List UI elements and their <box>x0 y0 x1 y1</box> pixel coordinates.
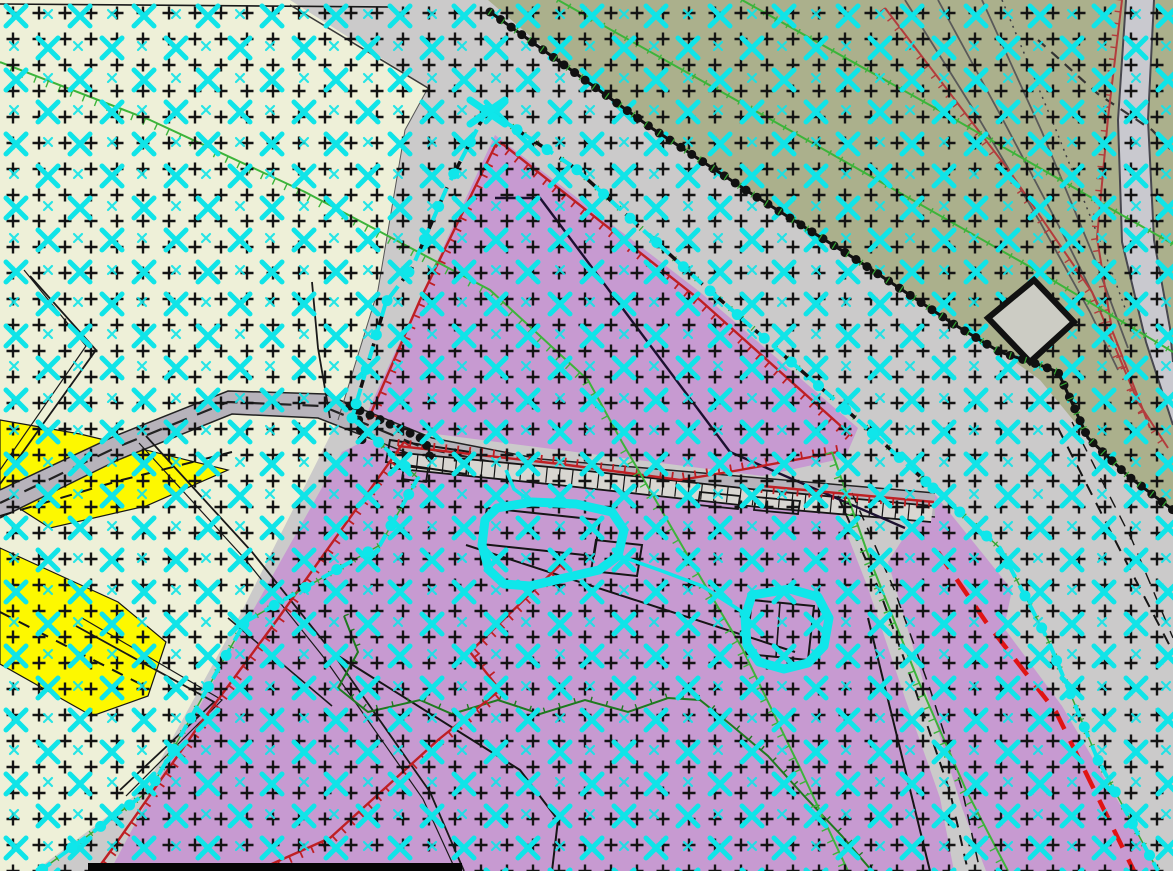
map-canvas <box>0 0 1173 871</box>
bottom-black-bar <box>88 863 462 871</box>
map-viewport[interactable] <box>0 0 1173 871</box>
x-symbol-grid <box>0 0 1173 871</box>
